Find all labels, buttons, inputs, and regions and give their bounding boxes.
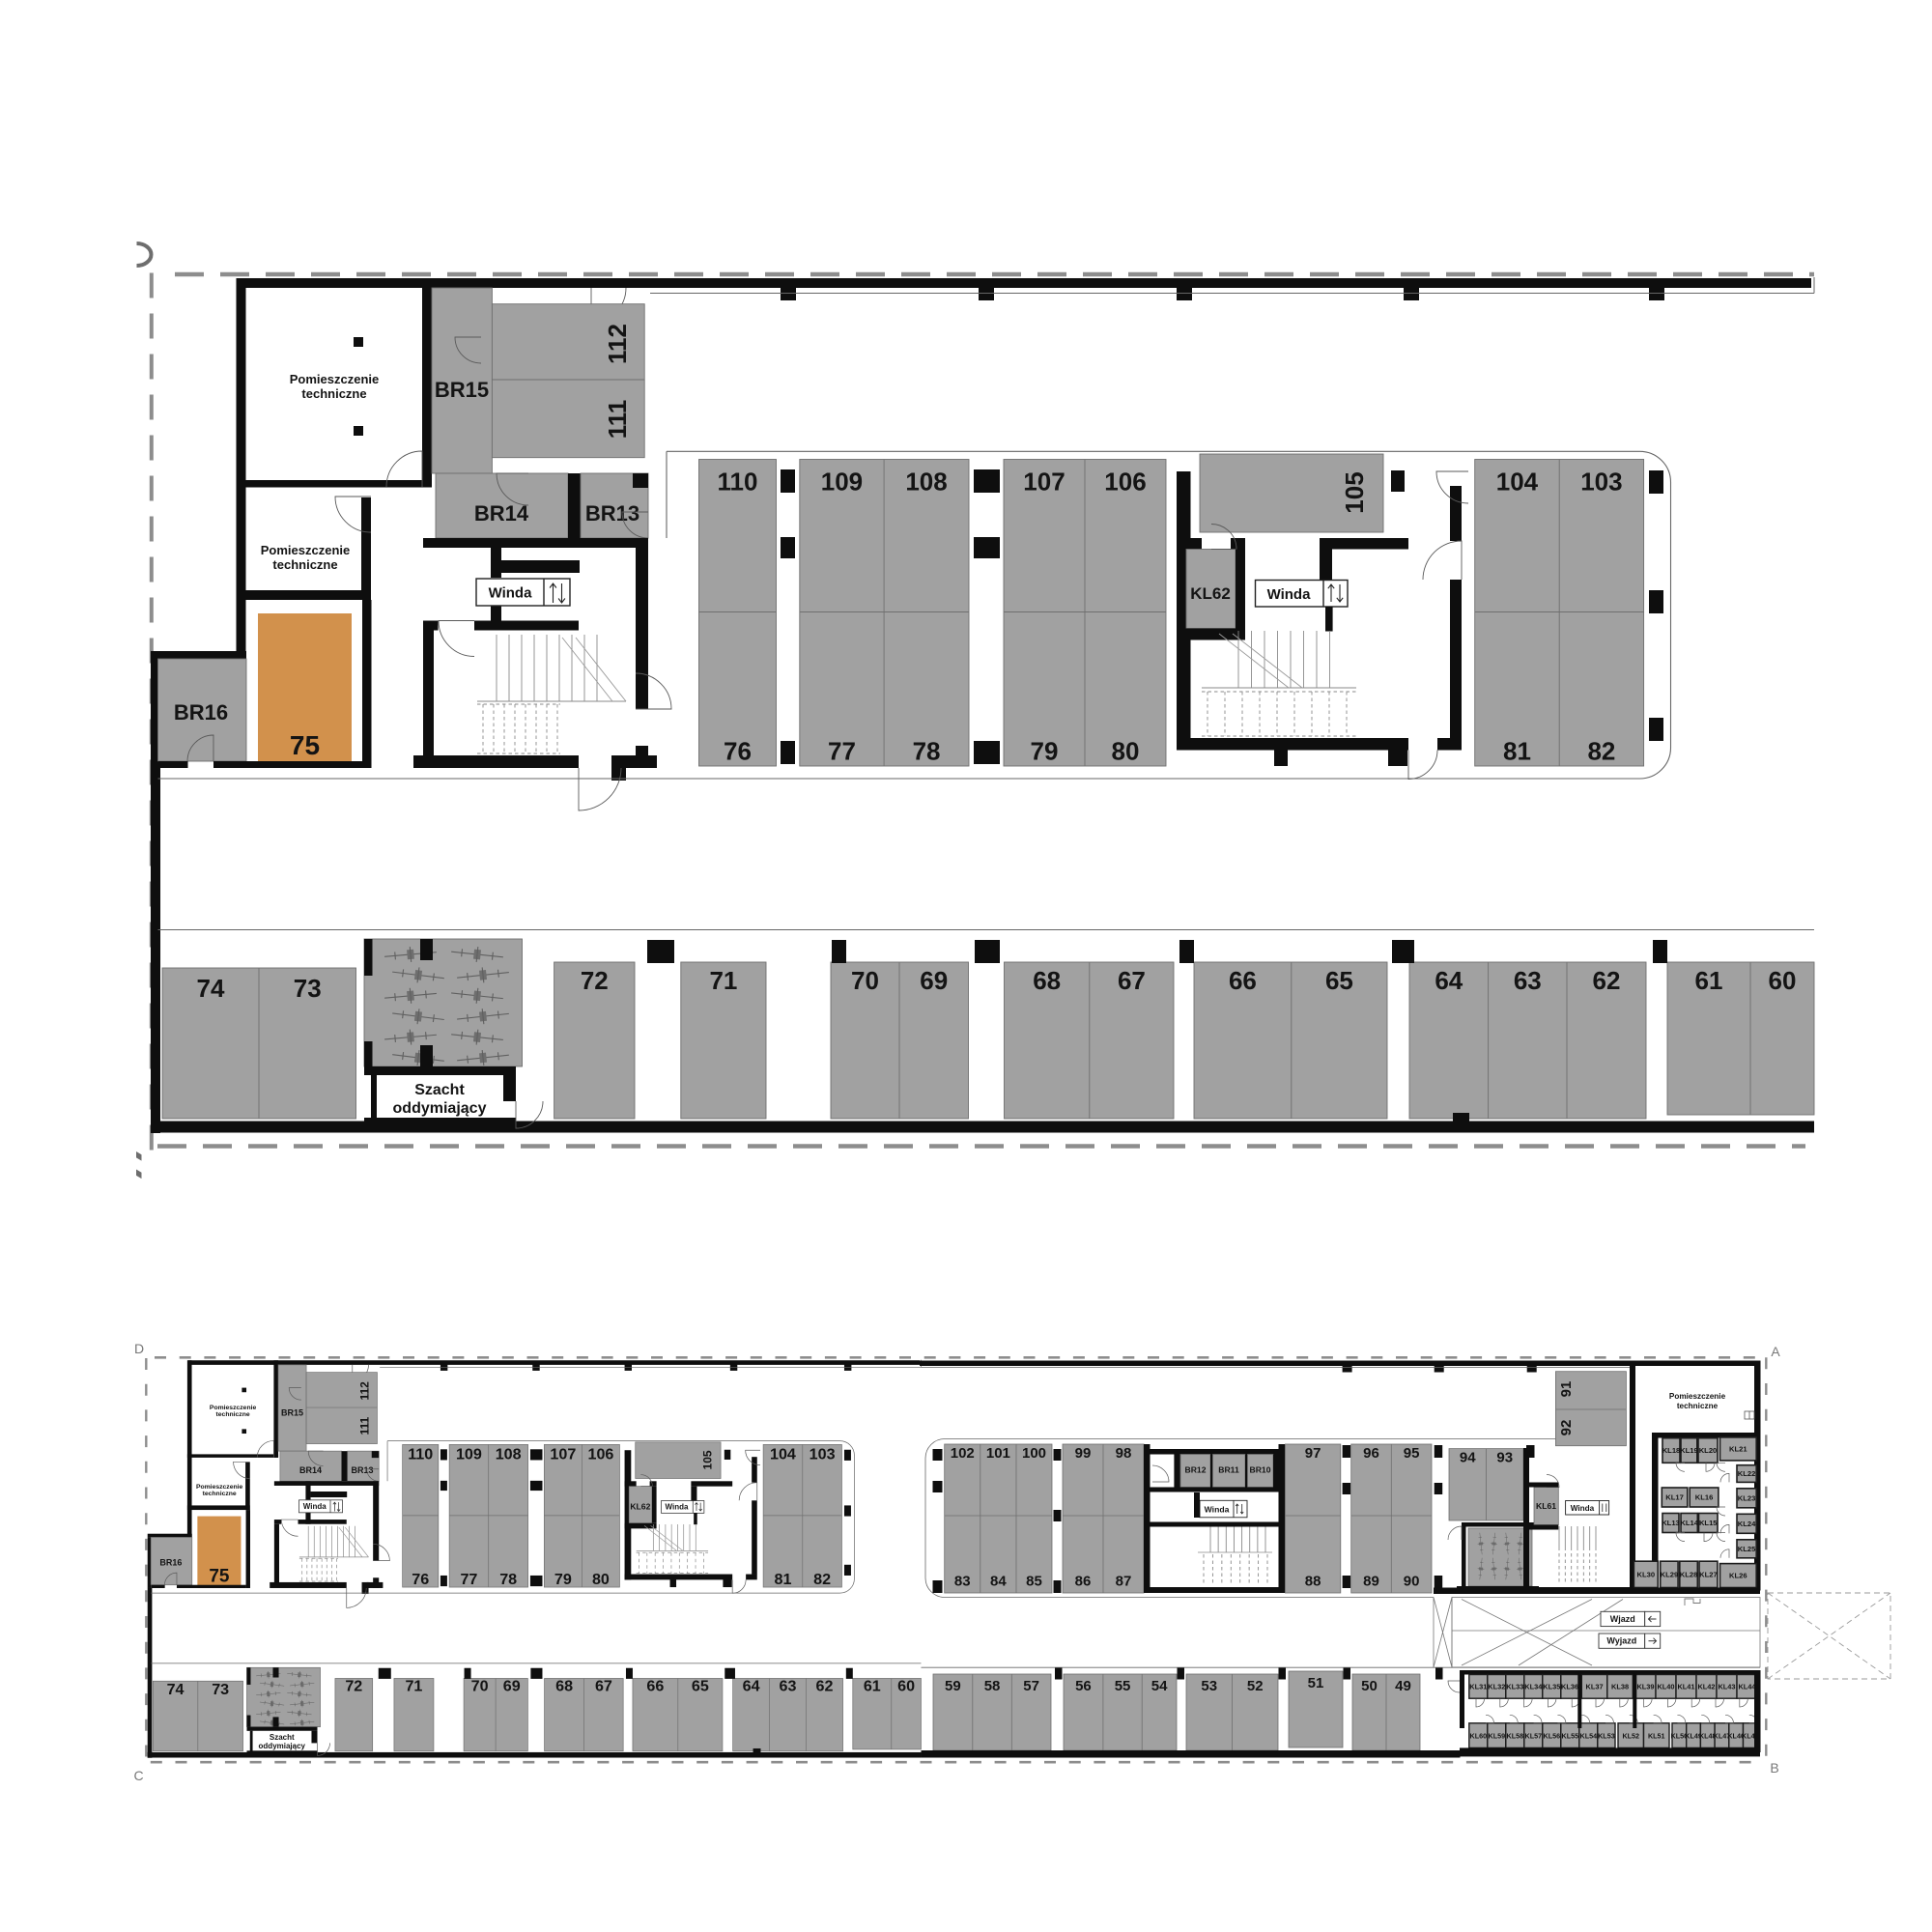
svg-text:Wjazd: Wjazd	[1610, 1614, 1635, 1624]
svg-text:79: 79	[1031, 737, 1059, 766]
svg-text:Pomieszczenie: Pomieszczenie	[1669, 1392, 1726, 1401]
svg-text:51: 51	[1308, 1675, 1324, 1691]
svg-text:BR13: BR13	[585, 501, 639, 526]
svg-text:68: 68	[1033, 966, 1061, 995]
svg-text:BR15: BR15	[281, 1407, 303, 1417]
svg-text:104: 104	[770, 1445, 796, 1463]
svg-text:89: 89	[1363, 1574, 1379, 1590]
svg-text:KL19: KL19	[1680, 1446, 1698, 1455]
svg-text:95: 95	[1404, 1445, 1420, 1462]
svg-text:74: 74	[197, 974, 225, 1003]
svg-text:Szacht: Szacht	[270, 1733, 295, 1742]
svg-text:66: 66	[1229, 966, 1257, 995]
svg-text:67: 67	[1118, 966, 1146, 995]
svg-text:85: 85	[1026, 1574, 1042, 1590]
svg-text:Winda: Winda	[1571, 1504, 1595, 1513]
svg-text:Wyjazd: Wyjazd	[1606, 1636, 1636, 1646]
svg-text:A: A	[1771, 1344, 1780, 1359]
svg-text:102: 102	[951, 1445, 975, 1462]
svg-text:techniczne: techniczne	[272, 557, 337, 572]
svg-text:84: 84	[990, 1574, 1007, 1590]
svg-text:62: 62	[816, 1677, 834, 1694]
svg-text:KL27: KL27	[1699, 1570, 1718, 1578]
svg-text:91: 91	[1558, 1381, 1575, 1398]
svg-text:KL25: KL25	[1738, 1545, 1756, 1553]
svg-text:110: 110	[408, 1445, 433, 1463]
svg-text:BR15: BR15	[435, 378, 489, 402]
svg-text:82: 82	[1587, 737, 1615, 766]
svg-text:64: 64	[743, 1677, 760, 1694]
svg-text:oddymiający: oddymiający	[393, 1100, 487, 1117]
svg-text:D: D	[134, 1341, 144, 1356]
svg-text:54: 54	[1151, 1678, 1168, 1694]
svg-text:KL21: KL21	[1729, 1445, 1747, 1454]
svg-text:techniczne: techniczne	[1677, 1402, 1719, 1410]
svg-text:61: 61	[1695, 966, 1723, 995]
svg-text:77: 77	[828, 737, 856, 766]
svg-text:50: 50	[1361, 1678, 1378, 1694]
svg-text:112: 112	[358, 1381, 372, 1401]
svg-text:60: 60	[1769, 966, 1797, 995]
svg-text:KL62: KL62	[630, 1502, 650, 1512]
svg-text:BR14: BR14	[299, 1465, 322, 1475]
svg-text:106: 106	[1104, 468, 1146, 497]
svg-text:78: 78	[913, 737, 941, 766]
svg-text:KL62: KL62	[1190, 584, 1231, 603]
svg-text:BR16: BR16	[174, 700, 228, 724]
svg-text:oddymiający: oddymiający	[259, 1742, 306, 1750]
svg-text:66: 66	[646, 1677, 664, 1694]
svg-text:KL41: KL41	[1677, 1683, 1694, 1691]
svg-text:techniczne: techniczne	[203, 1491, 237, 1497]
svg-text:KL30: KL30	[1637, 1570, 1656, 1578]
svg-text:BR14: BR14	[474, 501, 529, 526]
svg-text:83: 83	[954, 1574, 971, 1590]
svg-text:53: 53	[1201, 1678, 1217, 1694]
svg-text:67: 67	[595, 1677, 612, 1694]
svg-text:BR12: BR12	[1185, 1465, 1207, 1475]
svg-text:Szacht: Szacht	[414, 1082, 465, 1098]
svg-text:68: 68	[555, 1677, 573, 1694]
svg-text:79: 79	[554, 1571, 572, 1588]
svg-text:111: 111	[358, 1416, 372, 1435]
svg-text:99: 99	[1075, 1445, 1092, 1462]
svg-text:KL34: KL34	[1524, 1683, 1543, 1691]
svg-text:BR16: BR16	[159, 1558, 182, 1568]
svg-text:Winda: Winda	[1205, 1505, 1230, 1515]
svg-text:KL28: KL28	[1680, 1570, 1698, 1578]
svg-text:KL26: KL26	[1729, 1572, 1747, 1580]
svg-text:82: 82	[813, 1571, 831, 1588]
svg-text:65: 65	[1325, 966, 1353, 995]
svg-text:Winda: Winda	[489, 585, 533, 602]
svg-text:KL51: KL51	[1648, 1732, 1665, 1741]
svg-text:103: 103	[1580, 468, 1622, 497]
svg-text:105: 105	[700, 1450, 714, 1469]
svg-text:Winda: Winda	[1267, 586, 1312, 603]
svg-text:75: 75	[209, 1566, 230, 1586]
svg-text:KL23: KL23	[1738, 1493, 1756, 1502]
svg-text:KL36: KL36	[1561, 1683, 1578, 1691]
svg-text:65: 65	[692, 1677, 709, 1694]
svg-text:BR11: BR11	[1218, 1465, 1239, 1475]
svg-text:BR10: BR10	[1250, 1465, 1271, 1475]
svg-text:78: 78	[499, 1571, 517, 1588]
svg-text:108: 108	[905, 468, 947, 497]
svg-text:KL32: KL32	[1488, 1683, 1505, 1691]
svg-text:KL18: KL18	[1662, 1446, 1681, 1455]
svg-text:KL52: KL52	[1622, 1732, 1639, 1741]
svg-text:B: B	[1770, 1760, 1778, 1776]
svg-text:80: 80	[592, 1571, 610, 1588]
svg-text:Winda: Winda	[666, 1503, 689, 1512]
svg-text:71: 71	[709, 966, 737, 995]
svg-text:KL29: KL29	[1661, 1570, 1679, 1578]
svg-text:KL56: KL56	[1544, 1732, 1561, 1741]
svg-text:techniczne: techniczne	[301, 386, 366, 401]
svg-text:64: 64	[1435, 966, 1463, 995]
svg-text:56: 56	[1075, 1678, 1092, 1694]
svg-text:107: 107	[1023, 468, 1065, 497]
svg-text:111: 111	[603, 400, 632, 440]
svg-text:77: 77	[460, 1571, 477, 1588]
svg-text:KL16: KL16	[1695, 1493, 1714, 1502]
svg-text:KL44: KL44	[1738, 1683, 1756, 1691]
svg-text:75: 75	[290, 730, 320, 760]
svg-text:109: 109	[456, 1445, 482, 1463]
svg-text:KL59: KL59	[1489, 1732, 1506, 1741]
svg-text:92: 92	[1558, 1420, 1575, 1436]
svg-text:KL20: KL20	[1699, 1446, 1718, 1455]
svg-text:81: 81	[774, 1571, 791, 1588]
svg-text:KL42: KL42	[1697, 1683, 1715, 1691]
svg-text:KL17: KL17	[1665, 1493, 1684, 1502]
svg-text:KL14: KL14	[1680, 1519, 1698, 1527]
svg-text:69: 69	[920, 966, 948, 995]
svg-text:Pomieszczenie: Pomieszczenie	[210, 1405, 257, 1411]
svg-text:KL24: KL24	[1738, 1520, 1756, 1528]
svg-text:52: 52	[1247, 1678, 1264, 1694]
svg-text:90: 90	[1404, 1574, 1420, 1590]
svg-text:88: 88	[1305, 1574, 1321, 1590]
svg-text:61: 61	[864, 1677, 881, 1694]
svg-text:108: 108	[496, 1445, 522, 1463]
svg-text:KL15: KL15	[1699, 1519, 1718, 1527]
svg-text:KL53: KL53	[1598, 1732, 1615, 1741]
svg-text:KL33: KL33	[1506, 1683, 1523, 1691]
svg-text:96: 96	[1363, 1445, 1379, 1462]
svg-text:97: 97	[1305, 1445, 1321, 1462]
svg-text:80: 80	[1112, 737, 1140, 766]
svg-text:62: 62	[1593, 966, 1621, 995]
svg-text:110: 110	[718, 468, 758, 497]
svg-text:107: 107	[550, 1445, 576, 1463]
svg-text:98: 98	[1116, 1445, 1132, 1462]
svg-text:C: C	[133, 1768, 143, 1783]
svg-text:76: 76	[724, 737, 752, 766]
svg-text:KL58: KL58	[1507, 1732, 1524, 1741]
svg-text:KL35: KL35	[1543, 1683, 1560, 1691]
svg-text:81: 81	[1503, 737, 1531, 766]
svg-text:Pomieszczenie: Pomieszczenie	[290, 372, 380, 386]
svg-text:KL22: KL22	[1738, 1469, 1756, 1478]
svg-text:KL31: KL31	[1469, 1683, 1487, 1691]
svg-text:63: 63	[780, 1677, 797, 1694]
svg-text:72: 72	[345, 1677, 362, 1694]
svg-text:76: 76	[412, 1571, 429, 1588]
svg-text:KL54: KL54	[1580, 1732, 1598, 1741]
svg-text:KL57: KL57	[1525, 1732, 1543, 1741]
svg-text:94: 94	[1460, 1450, 1476, 1466]
svg-text:71: 71	[405, 1677, 422, 1694]
svg-text:69: 69	[503, 1677, 521, 1694]
svg-text:KL13: KL13	[1662, 1519, 1680, 1527]
svg-text:KL61: KL61	[1536, 1501, 1556, 1511]
svg-text:101: 101	[986, 1445, 1010, 1462]
svg-text:55: 55	[1115, 1678, 1131, 1694]
svg-text:73: 73	[294, 974, 322, 1003]
svg-text:74: 74	[167, 1681, 185, 1698]
svg-text:KL60: KL60	[1470, 1732, 1488, 1741]
svg-text:86: 86	[1075, 1574, 1092, 1590]
svg-text:58: 58	[984, 1678, 1001, 1694]
svg-text:Pomieszczenie: Pomieszczenie	[196, 1484, 243, 1491]
svg-text:70: 70	[851, 966, 879, 995]
svg-text:112: 112	[603, 324, 632, 364]
svg-text:49: 49	[1395, 1678, 1411, 1694]
svg-text:103: 103	[810, 1445, 836, 1463]
svg-text:87: 87	[1116, 1574, 1132, 1590]
svg-text:techniczne: techniczne	[216, 1411, 250, 1418]
svg-text:KL38: KL38	[1611, 1683, 1629, 1691]
svg-text:73: 73	[212, 1681, 229, 1698]
svg-text:KL37: KL37	[1586, 1683, 1604, 1691]
svg-text:KL55: KL55	[1562, 1732, 1579, 1741]
svg-text:72: 72	[581, 966, 609, 995]
svg-text:60: 60	[897, 1677, 915, 1694]
svg-text:109: 109	[821, 468, 863, 497]
svg-text:59: 59	[945, 1678, 961, 1694]
svg-text:57: 57	[1023, 1678, 1039, 1694]
svg-text:KL39: KL39	[1636, 1683, 1654, 1691]
svg-text:93: 93	[1496, 1450, 1513, 1466]
svg-text:Pomieszczenie: Pomieszczenie	[261, 543, 351, 557]
svg-text:KL43: KL43	[1718, 1683, 1735, 1691]
svg-text:Winda: Winda	[303, 1502, 327, 1511]
svg-text:63: 63	[1514, 966, 1542, 995]
svg-text:105: 105	[1340, 471, 1369, 513]
svg-text:100: 100	[1022, 1445, 1046, 1462]
svg-text:104: 104	[1496, 468, 1539, 497]
svg-text:106: 106	[587, 1445, 613, 1463]
svg-text:70: 70	[471, 1677, 489, 1694]
svg-text:KL40: KL40	[1657, 1683, 1674, 1691]
svg-text:BR13: BR13	[352, 1465, 374, 1475]
